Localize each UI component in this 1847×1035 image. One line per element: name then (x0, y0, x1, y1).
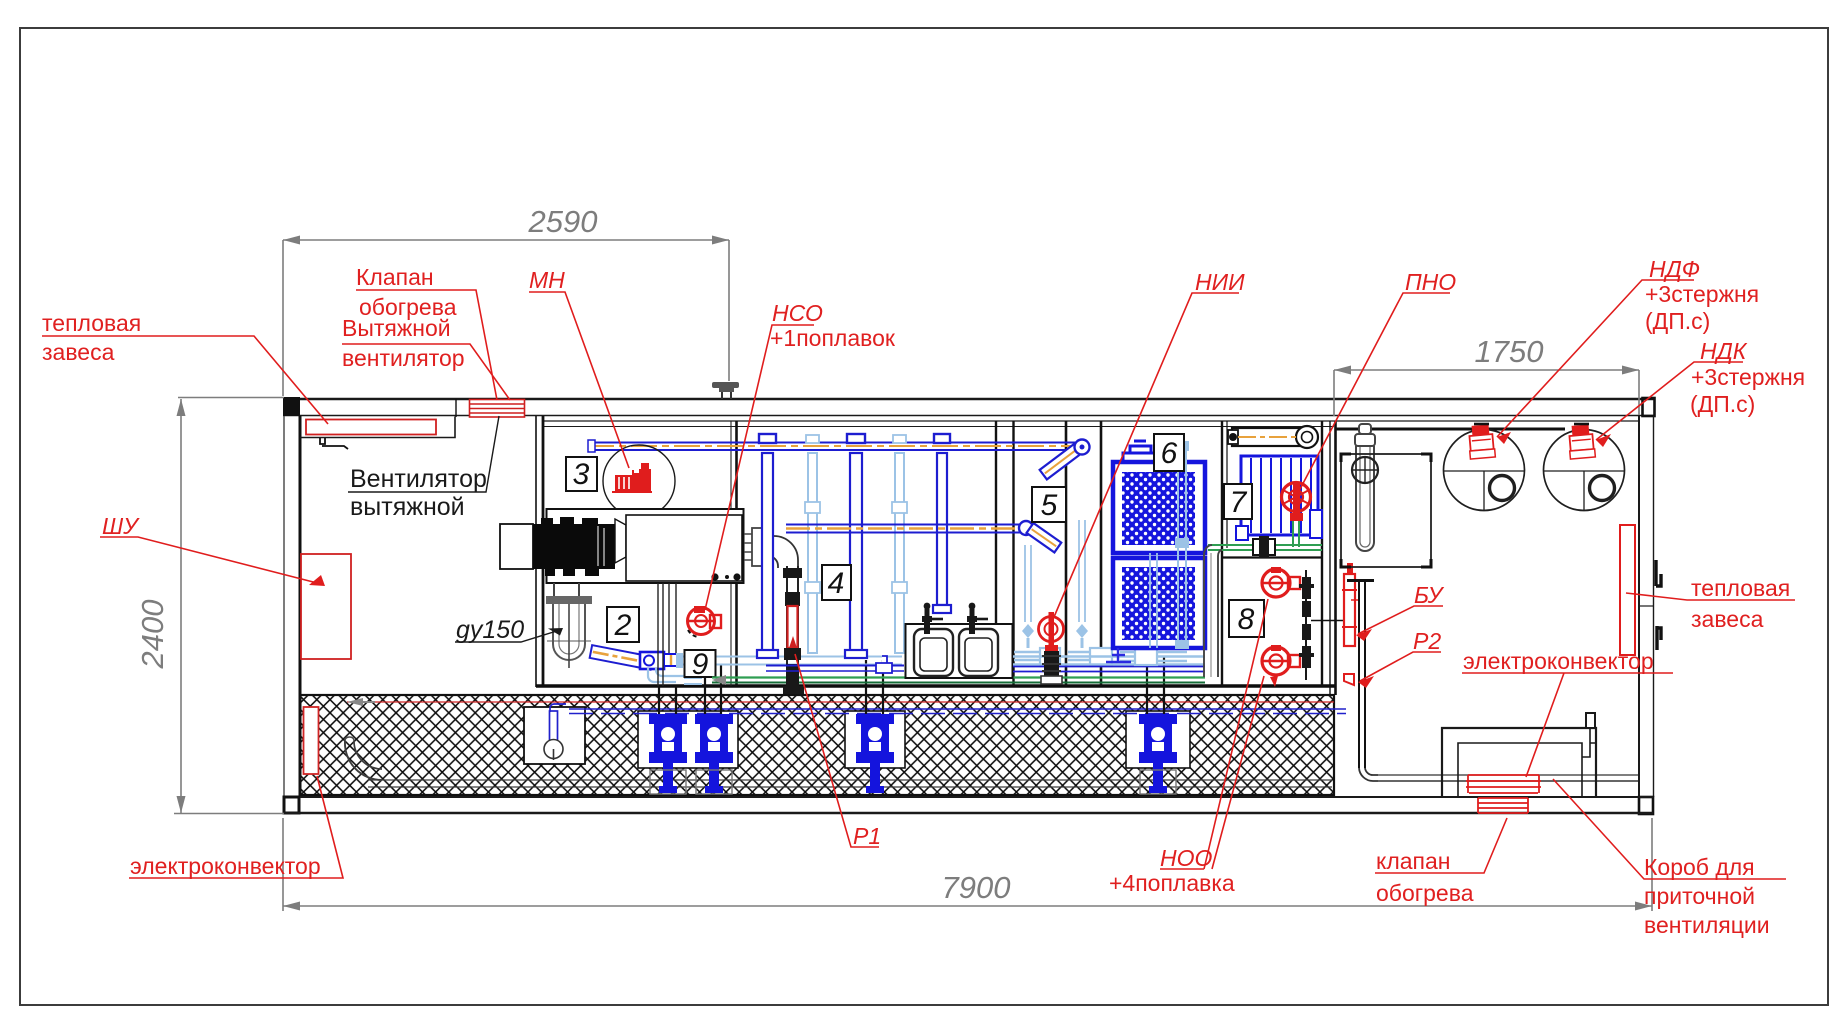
svg-text:НДФ: НДФ (1649, 256, 1700, 282)
svg-text:+4поплавка: +4поплавка (1109, 870, 1235, 896)
svg-text:5: 5 (1041, 489, 1058, 522)
svg-text:3: 3 (573, 458, 590, 491)
svg-text:обогрева: обогрева (1376, 880, 1474, 906)
svg-text:тепловая: тепловая (42, 310, 141, 336)
svg-text:Короб для: Короб для (1644, 854, 1755, 880)
svg-text:тепловая: тепловая (1691, 575, 1790, 601)
svg-text:4: 4 (828, 567, 845, 600)
svg-text:7900: 7900 (942, 870, 1011, 905)
svg-text:завеса: завеса (42, 339, 115, 365)
svg-text:ПНО: ПНО (1405, 269, 1456, 295)
svg-text:вентиляции: вентиляции (1644, 912, 1770, 938)
svg-text:НДК: НДК (1700, 338, 1748, 364)
svg-text:НИИ: НИИ (1195, 269, 1245, 295)
svg-text:2: 2 (614, 609, 632, 642)
svg-text:+3стержня: +3стержня (1691, 364, 1805, 390)
svg-text:Р1: Р1 (853, 823, 881, 849)
svg-text:2400: 2400 (135, 600, 170, 670)
svg-text:(ДП.с): (ДП.с) (1690, 391, 1755, 417)
svg-text:Р2: Р2 (1413, 628, 1441, 654)
svg-text:завеса: завеса (1691, 606, 1764, 632)
svg-text:1750: 1750 (1475, 334, 1544, 369)
svg-text:вытяжной: вытяжной (350, 493, 465, 521)
svg-text:(ДП.с): (ДП.с) (1645, 308, 1710, 334)
svg-text:Клапан: Клапан (356, 264, 434, 290)
svg-text:8: 8 (1238, 603, 1255, 636)
svg-text:клапан: клапан (1376, 848, 1450, 874)
svg-text:+3стержня: +3стержня (1645, 281, 1759, 307)
svg-text:9: 9 (692, 648, 709, 681)
svg-text:Вентилятор: Вентилятор (350, 465, 487, 493)
svg-text:приточной: приточной (1644, 883, 1755, 909)
svg-text:БУ: БУ (1414, 582, 1445, 608)
svg-text:2590: 2590 (528, 204, 598, 239)
svg-text:вентилятор: вентилятор (342, 345, 465, 371)
svg-text:электроконвектор: электроконвектор (1463, 648, 1654, 674)
svg-text:+1поплавок: +1поплавок (770, 325, 896, 351)
svg-text:6: 6 (1161, 437, 1178, 470)
svg-text:МН: МН (529, 267, 565, 293)
svg-text:gy150: gy150 (456, 616, 524, 644)
svg-text:электроконвектор: электроконвектор (130, 853, 321, 879)
svg-text:ШУ: ШУ (102, 513, 140, 539)
svg-text:7: 7 (1230, 486, 1248, 519)
svg-text:НСО: НСО (772, 300, 823, 326)
svg-text:Вытяжной: Вытяжной (342, 315, 451, 341)
